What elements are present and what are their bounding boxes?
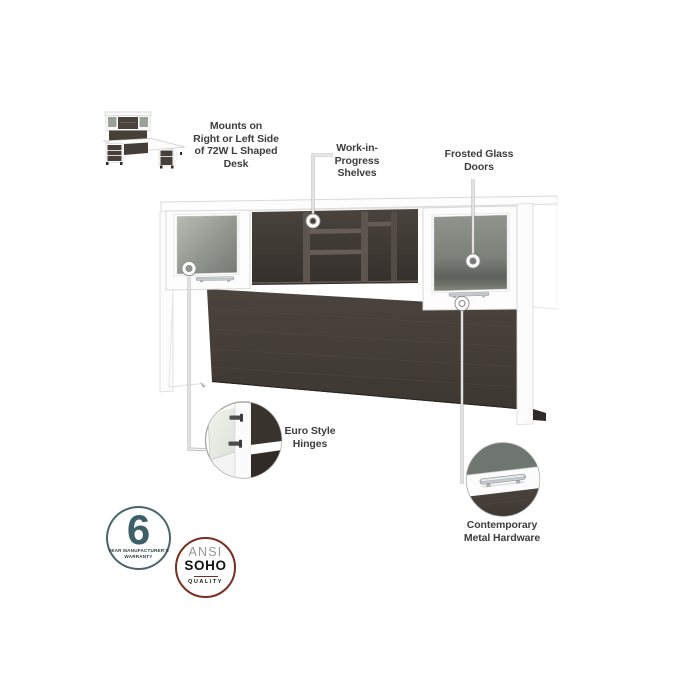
thumb-hutch-top bbox=[105, 112, 151, 116]
label-line: Doors bbox=[445, 161, 514, 174]
product-image: Mounts on Right or Left Side of 72W L Sh… bbox=[0, 0, 700, 700]
hutch-illustration bbox=[0, 0, 700, 700]
label-line: Metal Hardware bbox=[464, 532, 540, 545]
thumb-shelf-line bbox=[120, 122, 136, 123]
center-open-shelves bbox=[252, 209, 418, 285]
label-euro-style-hinges: Euro Style Hinges bbox=[285, 425, 336, 450]
label-line: Desk bbox=[193, 158, 279, 171]
right-rear-foot bbox=[533, 409, 546, 421]
label-line: Shelves bbox=[335, 167, 380, 180]
metal-hardware-detail-circle bbox=[464, 437, 541, 529]
detail-dark-compartment-bottom bbox=[251, 450, 282, 480]
right-frosted-glass bbox=[434, 215, 507, 291]
thumb-left-drawers bbox=[108, 145, 122, 161]
label-line: Mounts on bbox=[193, 120, 279, 133]
detail-open-glass-pane bbox=[208, 407, 235, 460]
open-door-corner-shadow bbox=[200, 382, 206, 388]
label-work-in-progress-shelves: Work-in- Progress Shelves bbox=[335, 142, 380, 180]
euro-hinges-detail-circle bbox=[205, 402, 282, 480]
soho-text: SOHO bbox=[184, 559, 226, 573]
hutch-unit bbox=[160, 196, 558, 425]
label-line: Contemporary bbox=[464, 519, 540, 532]
open-left-door bbox=[169, 290, 206, 388]
warranty-caption-line: WARRANTY bbox=[124, 554, 152, 560]
thumb-glass-right bbox=[140, 117, 149, 127]
label-line: Work-in- bbox=[335, 142, 380, 155]
organizer-mid-panel bbox=[361, 212, 368, 283]
label-line: Right or Left Side bbox=[193, 133, 279, 146]
quality-text: QUALITY bbox=[188, 579, 223, 585]
label-contemporary-metal-hardware: Contemporary Metal Hardware bbox=[464, 519, 540, 544]
ansi-soho-badge: ANSI SOHO QUALITY bbox=[175, 537, 236, 598]
label-line: of 72W L Shaped bbox=[193, 145, 279, 158]
euro-hinges-detail-content bbox=[205, 402, 282, 480]
thumb-modesty-panel bbox=[124, 143, 148, 156]
label-line: Euro Style bbox=[285, 425, 336, 438]
open-door-bottom-edge bbox=[169, 384, 203, 388]
label-mounts-note: Mounts on Right or Left Side of 72W L Sh… bbox=[193, 120, 279, 170]
detail-dark-compartment-top bbox=[251, 402, 282, 445]
organizer-right-panel bbox=[391, 212, 397, 282]
label-line: Hinges bbox=[285, 438, 336, 451]
thumb-drawer-line bbox=[108, 150, 122, 151]
thumb-right-drawers bbox=[161, 151, 173, 166]
badge-divider bbox=[194, 576, 218, 578]
label-line: Progress bbox=[335, 155, 380, 168]
thumb-drawer-line bbox=[108, 155, 122, 156]
label-line: Frosted Glass bbox=[445, 148, 514, 161]
warranty-years-number: 6 bbox=[127, 511, 150, 548]
metal-hardware-detail-content bbox=[464, 437, 541, 529]
label-frosted-glass-doors: Frosted Glass Doors bbox=[445, 148, 514, 173]
hutch-right-end-panel bbox=[517, 204, 533, 425]
organizer-upper-shelf bbox=[368, 222, 391, 227]
thumb-glass-left bbox=[108, 117, 117, 127]
thumbnail-desk bbox=[103, 112, 185, 169]
thumb-drawer-line bbox=[161, 156, 173, 157]
warranty-badge: 6 YEAR MANUFACTURER'S WARRANTY bbox=[106, 506, 171, 570]
left-door-cabinet bbox=[166, 210, 250, 290]
leader-euro-hinges bbox=[189, 277, 206, 450]
